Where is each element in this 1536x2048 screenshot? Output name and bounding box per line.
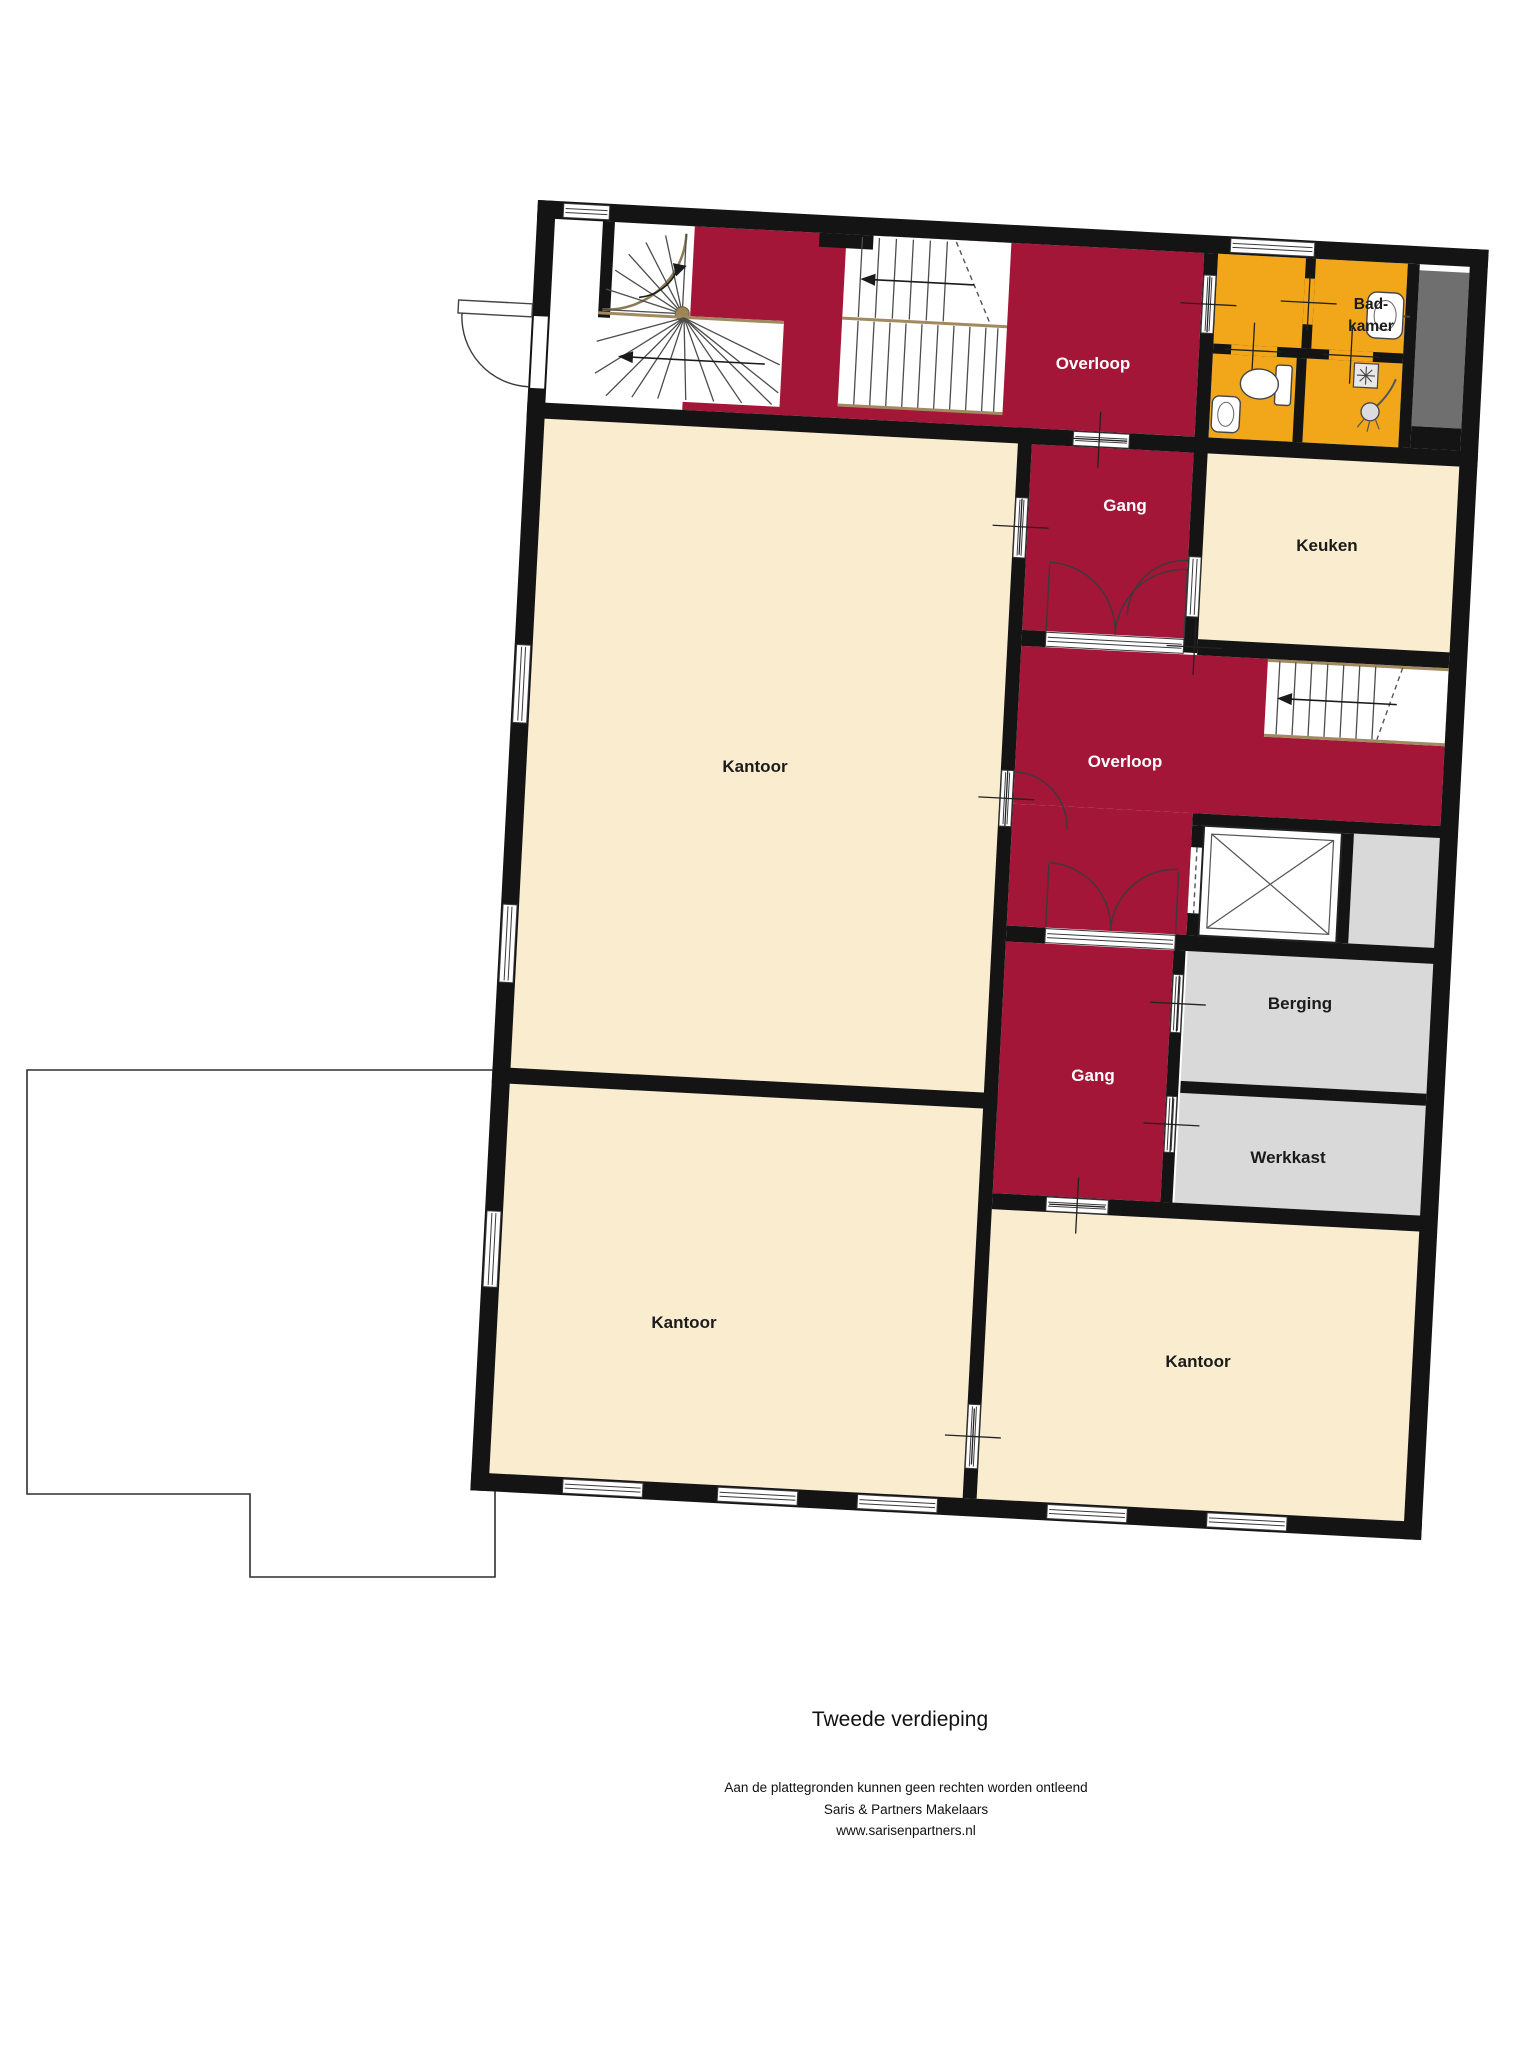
floorplan-page: Overloop Gang Keuken Bad- kamer Overloop…: [0, 0, 1536, 2048]
room-overloop-mid-arm: [1007, 804, 1193, 935]
room-label-werkkast: Werkkast: [1250, 1148, 1326, 1167]
footer: Aan de plattegronden kunnen geen rechten…: [0, 1777, 1536, 1842]
neighbor-outline: [27, 1070, 495, 1577]
footer-website: www.sarisenpartners.nl: [0, 1820, 1536, 1842]
door-opening: [1186, 557, 1201, 618]
stairwell-vestibule: [545, 219, 603, 405]
room-label-kantoor-groot: Kantoor: [722, 757, 788, 776]
footer-company: Saris & Partners Makelaars: [0, 1799, 1536, 1821]
room-label-overloop-mid: Overloop: [1088, 752, 1163, 771]
small-sink-icon: [1211, 396, 1241, 433]
berging-upper-arm: [1348, 834, 1440, 948]
room-label-gang-mid: Gang: [1071, 1066, 1114, 1085]
plan-title: Tweede verdieping: [0, 1708, 1536, 1732]
building-plan: [396, 196, 1488, 1540]
floorplan-svg: Overloop Gang Keuken Bad- kamer Overloop…: [0, 0, 1536, 2048]
room-label-kantoor-rechts: Kantoor: [1165, 1352, 1231, 1371]
room-label-keuken: Keuken: [1296, 536, 1357, 555]
footer-disclaimer: Aan de plattegronden kunnen geen rechten…: [0, 1777, 1536, 1799]
shaft: [1411, 270, 1469, 428]
room-kantoor-groot: [511, 419, 1018, 1093]
room-label-badkamer-line1: Bad-: [1354, 296, 1388, 313]
elevator: [1192, 825, 1342, 942]
room-label-badkamer-line2: kamer: [1348, 318, 1394, 335]
room-label-kantoor-links: Kantoor: [651, 1313, 717, 1332]
window: [563, 203, 610, 219]
room-label-overloop-top: Overloop: [1056, 354, 1131, 373]
room-label-berging: Berging: [1268, 994, 1332, 1013]
room-berging: [1181, 951, 1433, 1094]
room-label-gang-top: Gang: [1103, 496, 1146, 515]
room-kantoor-links: [489, 1084, 983, 1498]
entry-door: [454, 300, 532, 387]
fan-icon: [1353, 363, 1378, 388]
